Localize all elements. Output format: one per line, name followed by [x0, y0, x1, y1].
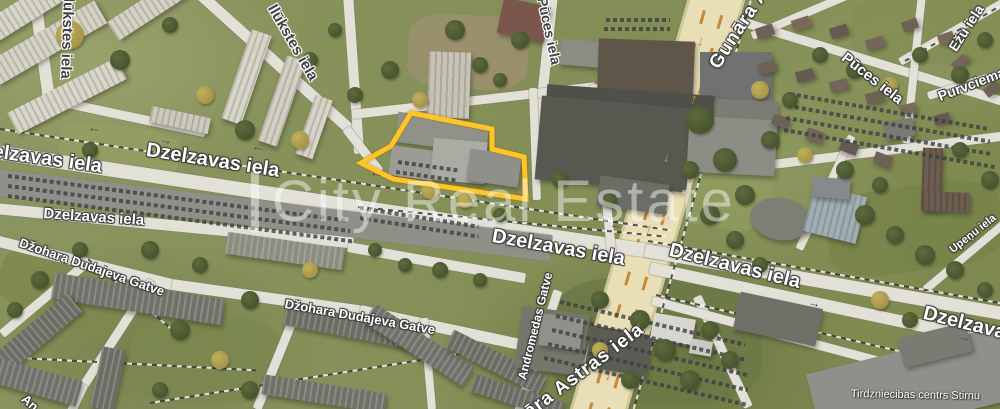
street-label-dzhohara-1: Džohara Dudajeva Gatve [18, 236, 166, 298]
street-label-dzelzavas-2: Dzelzavas iela [145, 140, 281, 181]
street-label-purvciema: Purvciema iela [936, 55, 1000, 103]
aerial-map-canvas[interactable]: ←←→←→←←←→→↓↑↓↑↑↓ Ilūkstes iela Ilūkstes … [0, 0, 1000, 409]
street-label-ilukstes-2: Ilūkstes iela [265, 2, 321, 83]
street-label-gunara-astras-top: Gunāra Astras iela [706, 0, 823, 72]
watermark-bracket-bar [251, 172, 259, 232]
street-label-an-partial: An [19, 392, 41, 409]
street-label-gunara-astras-bottom: Gunāra Astras iela [488, 320, 647, 409]
street-label-puces: Pūces iela [839, 50, 906, 107]
poi-label-stirnu: Tirdzniecibas centrs Stirnu [851, 389, 980, 402]
street-label-ezu: Ežu iela [946, 2, 986, 53]
street-label-dzelzavas-3: Dzelzavas iela [43, 206, 145, 228]
street-label-upenu: Upeņu iela [948, 213, 999, 256]
street-label-dzhohara-2: Džohara Dudajeva Gatve [284, 297, 436, 336]
street-label-puces-top: Pūces iela [535, 0, 563, 66]
street-label-ilukstes-1: Ilūkstes iela [58, 0, 76, 79]
street-label-andromedas: Andromedas Gatve [516, 271, 554, 381]
street-label-dzelzavas-1: Dzelzavas iela [0, 138, 103, 177]
watermark-text: City Real Estate [272, 168, 736, 235]
street-label-dzelzavas-5: Dzelzavas iela [667, 240, 802, 292]
street-label-dzelzavas-6: Dzelzavas iela [921, 303, 1000, 355]
